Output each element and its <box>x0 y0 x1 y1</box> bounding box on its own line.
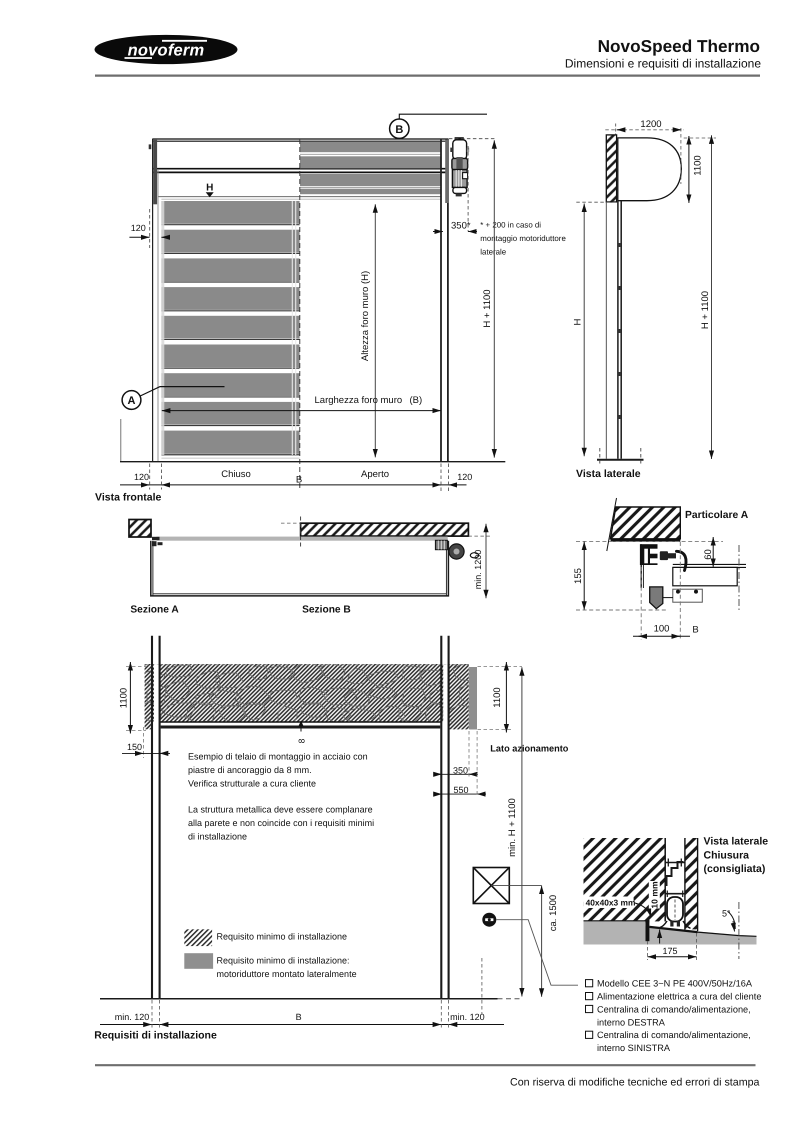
svg-text:40x40x3 mm: 40x40x3 mm <box>586 898 636 908</box>
svg-text:motoriduttore montato lateralm: motoriduttore montato lateralmente <box>217 969 357 979</box>
svg-text:1100: 1100 <box>492 687 503 707</box>
svg-text:Requisito minimo di installazi: Requisito minimo di installazione: <box>217 956 350 966</box>
svg-text:ca. 1500: ca. 1500 <box>548 895 559 931</box>
svg-text:155: 155 <box>573 568 584 584</box>
svg-text:H + 1100: H + 1100 <box>482 289 493 327</box>
svg-text:NovoSpeed Thermo: NovoSpeed Thermo <box>598 36 760 56</box>
svg-text:(consigliata): (consigliata) <box>704 863 766 875</box>
svg-text:10 mm: 10 mm <box>649 881 659 909</box>
svg-text:120: 120 <box>134 472 149 482</box>
svg-text:laterale: laterale <box>480 248 506 257</box>
svg-text:550: 550 <box>453 785 468 795</box>
svg-text:1100: 1100 <box>693 155 704 175</box>
svg-text:100: 100 <box>654 624 670 635</box>
svg-text:175: 175 <box>662 946 677 956</box>
svg-text:Requisito minimo di installazi: Requisito minimo di installazione <box>217 932 348 942</box>
svg-text:min. 120: min. 120 <box>115 1012 150 1022</box>
svg-text:Centralina di comando/alimenta: Centralina di comando/alimentazione, <box>597 1030 751 1040</box>
svg-text:piastre di ancoraggio da 8 mm.: piastre di ancoraggio da 8 mm. <box>188 765 312 775</box>
svg-text:Sezione A: Sezione A <box>130 605 179 616</box>
svg-text:150: 150 <box>127 742 142 752</box>
svg-text:Esempio di telaio di montaggio: Esempio di telaio di montaggio in acciai… <box>188 752 368 762</box>
svg-text:H: H <box>206 183 213 194</box>
svg-text:Chiuso: Chiuso <box>221 469 251 480</box>
svg-text:Dimensioni e requisiti di inst: Dimensioni e requisiti di installazione <box>565 57 761 71</box>
svg-text:1100: 1100 <box>118 688 129 708</box>
svg-text:120: 120 <box>457 472 472 482</box>
svg-text:Vista laterale: Vista laterale <box>704 836 769 848</box>
svg-text:min. 1200: min. 1200 <box>473 550 483 590</box>
svg-text:B: B <box>395 124 403 136</box>
svg-text:* + 200 in caso di: * + 200 in caso di <box>480 221 541 230</box>
svg-text:60: 60 <box>703 549 714 560</box>
svg-text:interno SINISTRA: interno SINISTRA <box>597 1043 671 1053</box>
svg-text:alla parete e non coincide con: alla parete e non coincide con i requisi… <box>188 818 374 828</box>
svg-text:Con riserva di modifiche tecni: Con riserva di modifiche tecniche ed err… <box>510 1077 760 1089</box>
svg-text:La struttura metallica deve es: La struttura metallica deve essere compl… <box>188 805 373 815</box>
svg-text:Centralina di comando/alimenta: Centralina di comando/alimentazione, <box>597 1004 751 1014</box>
svg-text:Modello CEE 3~N PE 400V/50Hz/1: Modello CEE 3~N PE 400V/50Hz/16A <box>597 979 753 989</box>
svg-text:di installazione: di installazione <box>188 832 247 842</box>
svg-text:120: 120 <box>131 223 146 233</box>
svg-text:Verifica strutturale a cura cl: Verifica strutturale a cura cliente <box>188 779 316 789</box>
svg-text:Altezza foro muro (H): Altezza foro muro (H) <box>360 271 371 361</box>
svg-text:B: B <box>296 475 302 486</box>
svg-text:A: A <box>128 395 136 407</box>
svg-text:Particolare A: Particolare A <box>685 510 749 521</box>
svg-text:Larghezza foro muro: Larghezza foro muro <box>315 395 403 406</box>
svg-text:8: 8 <box>297 738 307 743</box>
svg-text:(B): (B) <box>410 395 423 406</box>
svg-text:novoferm: novoferm <box>128 42 205 60</box>
svg-text:Requisiti di installazione: Requisiti di installazione <box>94 1030 217 1042</box>
svg-text:interno DESTRA: interno DESTRA <box>597 1017 666 1027</box>
svg-text:Vista laterale: Vista laterale <box>576 468 641 480</box>
svg-text:Chiusura: Chiusura <box>704 849 750 861</box>
svg-text:Vista frontale: Vista frontale <box>95 492 161 504</box>
svg-text:B: B <box>692 625 698 636</box>
svg-text:Alimentazione elettrica a cura: Alimentazione elettrica a cura del clien… <box>597 992 761 1002</box>
svg-text:min. 120: min. 120 <box>450 1012 485 1022</box>
svg-text:montaggio motoriduttore: montaggio motoriduttore <box>480 234 566 243</box>
svg-text:B: B <box>296 1012 302 1022</box>
svg-text:1200: 1200 <box>640 119 661 130</box>
svg-text:Aperto: Aperto <box>361 469 389 480</box>
svg-text:H: H <box>573 318 584 325</box>
svg-text:Lato azionamento: Lato azionamento <box>490 744 568 754</box>
svg-text:min. H + 1100: min. H + 1100 <box>507 798 518 857</box>
svg-text:H + 1100: H + 1100 <box>700 291 711 329</box>
svg-text:Sezione B: Sezione B <box>302 605 351 616</box>
